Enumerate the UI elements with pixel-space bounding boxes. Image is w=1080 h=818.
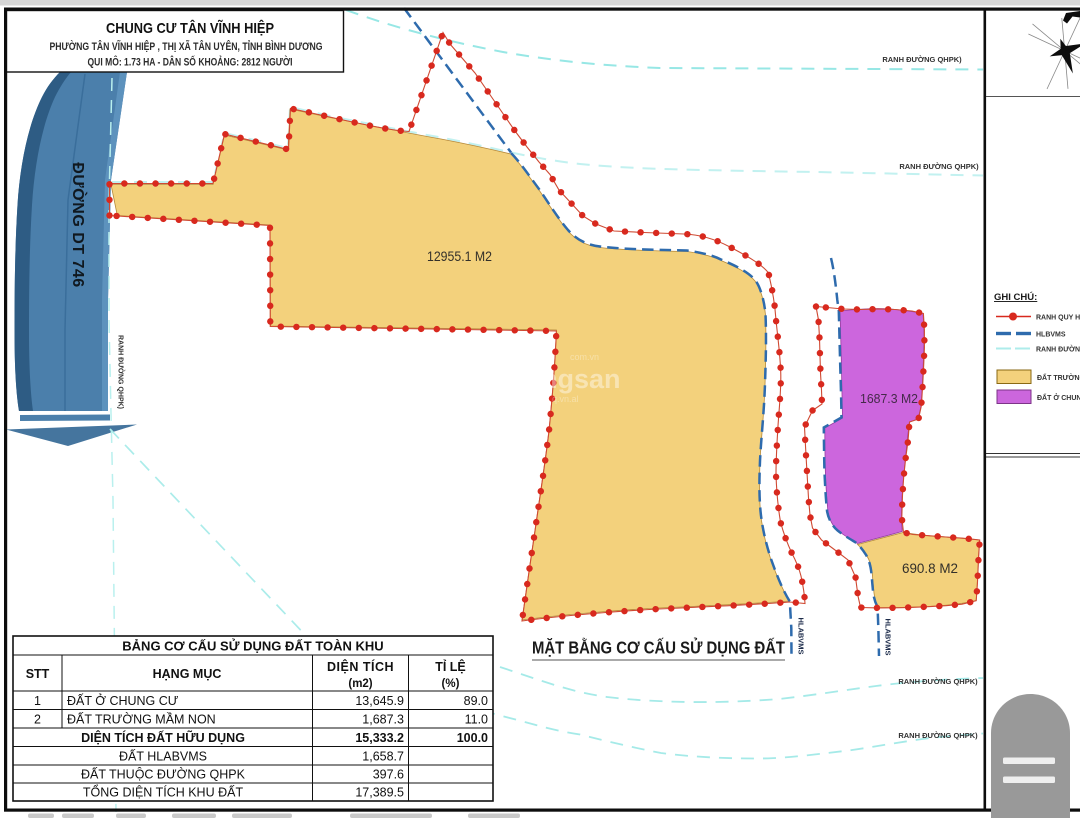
svg-text:PHƯỜNG TÂN VĨNH HIỆP , THỊ XÃ: PHƯỜNG TÂN VĨNH HIỆP , THỊ XÃ TÂN UYÊN, … <box>50 40 323 53</box>
svg-text:11.0: 11.0 <box>465 713 488 727</box>
svg-text:15,333.2: 15,333.2 <box>355 731 404 745</box>
svg-text:MẶT BẰNG CƠ CẤU SỬ DỤNG ĐẤT: MẶT BẰNG CƠ CẤU SỬ DỤNG ĐẤT <box>532 637 785 658</box>
svg-text:89.0: 89.0 <box>464 694 488 708</box>
svg-text:GHI CHÚ:: GHI CHÚ: <box>994 291 1037 303</box>
svg-text:BẢNG CƠ CẤU SỬ DỤNG ĐẤT TOÀN K: BẢNG CƠ CẤU SỬ DỤNG ĐẤT TOÀN KHU <box>122 639 383 654</box>
svg-text:q.vn.al: q.vn.al <box>552 394 579 404</box>
svg-text:ĐẤT THUỘC ĐƯỜNG QHPK: ĐẤT THUỘC ĐƯỜNG QHPK <box>81 767 246 782</box>
svg-text:RANH ĐƯỜNG QHPK): RANH ĐƯỜNG QHPK) <box>899 162 979 171</box>
svg-text:17,389.5: 17,389.5 <box>355 786 404 800</box>
svg-text:TỈ LỆ: TỈ LỆ <box>435 659 466 674</box>
svg-text:RANH ĐƯỜNG QHPK): RANH ĐƯỜNG QHPK) <box>882 55 962 64</box>
svg-text:com.vn: com.vn <box>570 352 599 362</box>
svg-text:DIỆN TÍCH ĐẤT HỮU DỤNG: DIỆN TÍCH ĐẤT HỮU DỤNG <box>81 730 245 745</box>
svg-text:1,658.7: 1,658.7 <box>362 750 404 764</box>
svg-text:RANH QUY HOẠCH: RANH QUY HOẠCH <box>1036 315 1080 322</box>
svg-text:(m2): (m2) <box>348 678 372 690</box>
svg-text:ĐẤT HLABVMS: ĐẤT HLABVMS <box>119 749 207 764</box>
svg-text:HLABVMS: HLABVMS <box>797 617 806 654</box>
svg-text:1,687.3: 1,687.3 <box>362 713 404 727</box>
svg-text:2: 2 <box>34 713 41 727</box>
svg-text:13,645.9: 13,645.9 <box>355 694 404 708</box>
svg-text:12955.1 M2: 12955.1 M2 <box>427 249 492 264</box>
svg-text:100.0: 100.0 <box>457 731 488 745</box>
svg-text:HẠNG MỤC: HẠNG MỤC <box>153 667 222 681</box>
svg-text:1687.3 M2: 1687.3 M2 <box>860 391 918 406</box>
svg-text:ngsan: ngsan <box>541 364 621 394</box>
svg-text:HLBVMS: HLBVMS <box>1036 332 1066 339</box>
svg-text:CHUNG CƯ TÂN VĨNH HIỆP: CHUNG CƯ TÂN VĨNH HIỆP <box>106 19 274 37</box>
svg-text:RANH ĐƯỜNG QHPK): RANH ĐƯỜNG QHPK) <box>117 335 126 409</box>
svg-text:TỔNG DIỆN TÍCH KHU ĐẤT: TỔNG DIỆN TÍCH KHU ĐẤT <box>83 785 244 800</box>
svg-text:ĐƯỜNG DT 746: ĐƯỜNG DT 746 <box>69 162 88 287</box>
svg-text:690.8 M2: 690.8 M2 <box>902 561 958 576</box>
svg-text:ĐẤT Ở CHUNG CƯ: ĐẤT Ở CHUNG CƯ <box>67 693 179 708</box>
svg-text:RANH ĐƯỜNG QHPK): RANH ĐƯỜNG QHPK) <box>898 731 978 740</box>
svg-text:QUI MÔ: 1.73 HA - DÂN SỐ KHOẢN: QUI MÔ: 1.73 HA - DÂN SỐ KHOẢNG: 2812 NG… <box>88 55 293 69</box>
svg-text:ĐẤT TRƯỜNG MẦM NON: ĐẤT TRƯỜNG MẦM NON <box>67 712 216 727</box>
svg-text:RANH ĐƯỜNG QHPK): RANH ĐƯỜNG QHPK) <box>898 677 978 686</box>
svg-text:397.6: 397.6 <box>373 768 404 782</box>
svg-text:(%): (%) <box>442 678 460 690</box>
svg-text:RANH ĐƯỜNG QHPK: RANH ĐƯỜNG QHPK <box>1036 345 1080 354</box>
svg-text:1: 1 <box>34 694 41 708</box>
svg-text:DIỆN TÍCH: DIỆN TÍCH <box>327 659 394 674</box>
svg-text:HLABVMS: HLABVMS <box>884 618 893 655</box>
svg-text:STT: STT <box>26 667 50 681</box>
